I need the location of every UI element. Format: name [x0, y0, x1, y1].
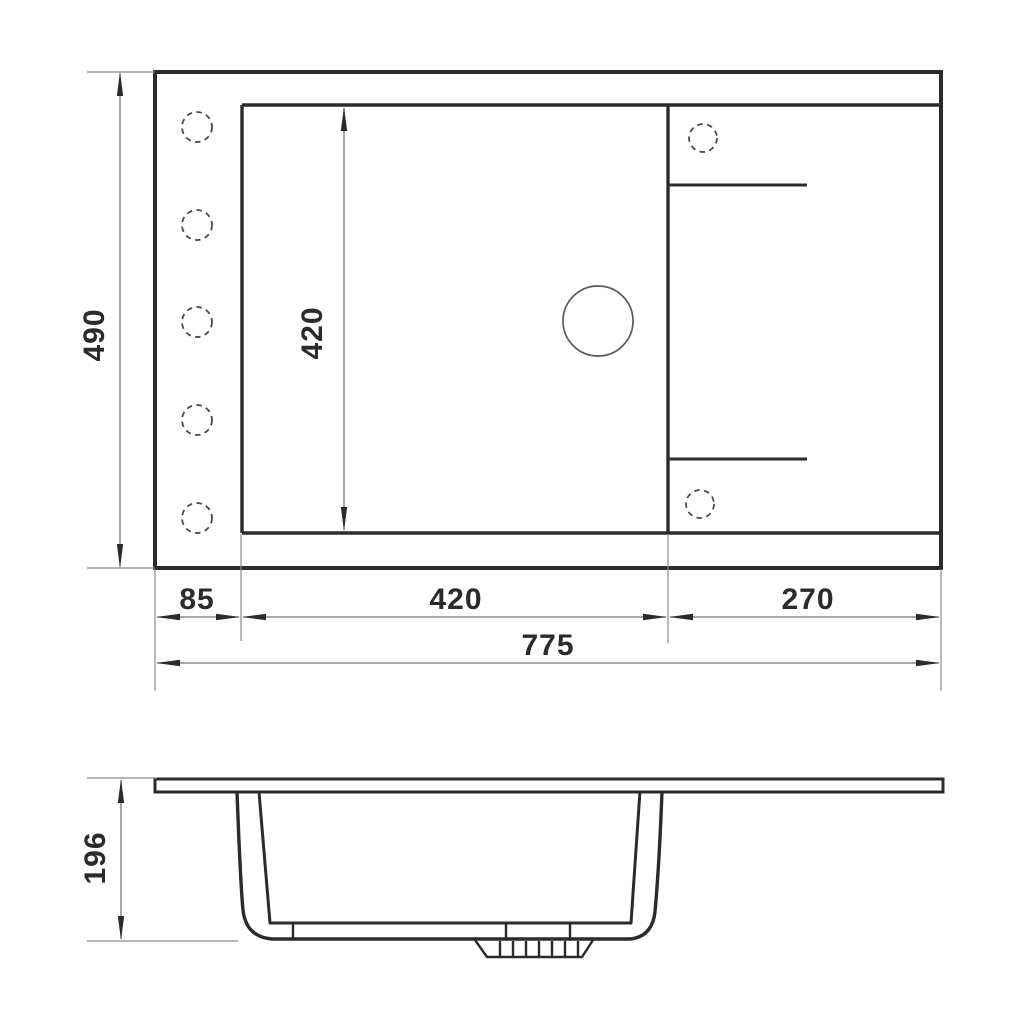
drain-strainer-outline — [475, 940, 593, 957]
faucet-hole-circle — [563, 286, 633, 356]
mounting-hole-dashed-circle — [182, 112, 212, 142]
deck-profile — [155, 779, 943, 792]
sink-outer-outline — [155, 72, 941, 568]
dim-label-height: 196 — [79, 831, 112, 884]
mounting-hole-dashed-circle — [182, 210, 212, 240]
side-view-dimensions: 196 — [79, 778, 238, 941]
left-mounting-holes — [182, 112, 212, 533]
mounting-hole-dashed-circle — [182, 405, 212, 435]
drawing-sheet: 490 420 85 420 270 775 — [0, 0, 1024, 1024]
bowl-inner-profile — [259, 791, 640, 923]
mounting-hole-dashed-circle — [689, 124, 717, 152]
drain-strainer-ribs — [500, 941, 578, 956]
mounting-hole-dashed-circle — [182, 307, 212, 337]
side-view — [155, 779, 943, 957]
drain-strainer — [475, 940, 593, 957]
dim-label-left-offset: 85 — [179, 583, 214, 616]
top-view-dimensions: 490 420 85 420 270 775 — [78, 72, 941, 691]
dim-label-bowl-width: 420 — [429, 583, 482, 616]
mounting-hole-dashed-circle — [182, 503, 212, 533]
sink-technical-drawing: 490 420 85 420 270 775 — [0, 0, 1024, 1024]
dim-label-bowl-depth: 420 — [296, 306, 329, 359]
dim-label-right-section: 270 — [781, 583, 834, 616]
bowl-outer-profile — [237, 791, 662, 939]
mounting-hole-dashed-circle — [686, 490, 714, 518]
dim-label-depth: 490 — [78, 308, 111, 361]
dim-label-overall-width: 775 — [521, 629, 574, 662]
top-view — [155, 72, 941, 568]
